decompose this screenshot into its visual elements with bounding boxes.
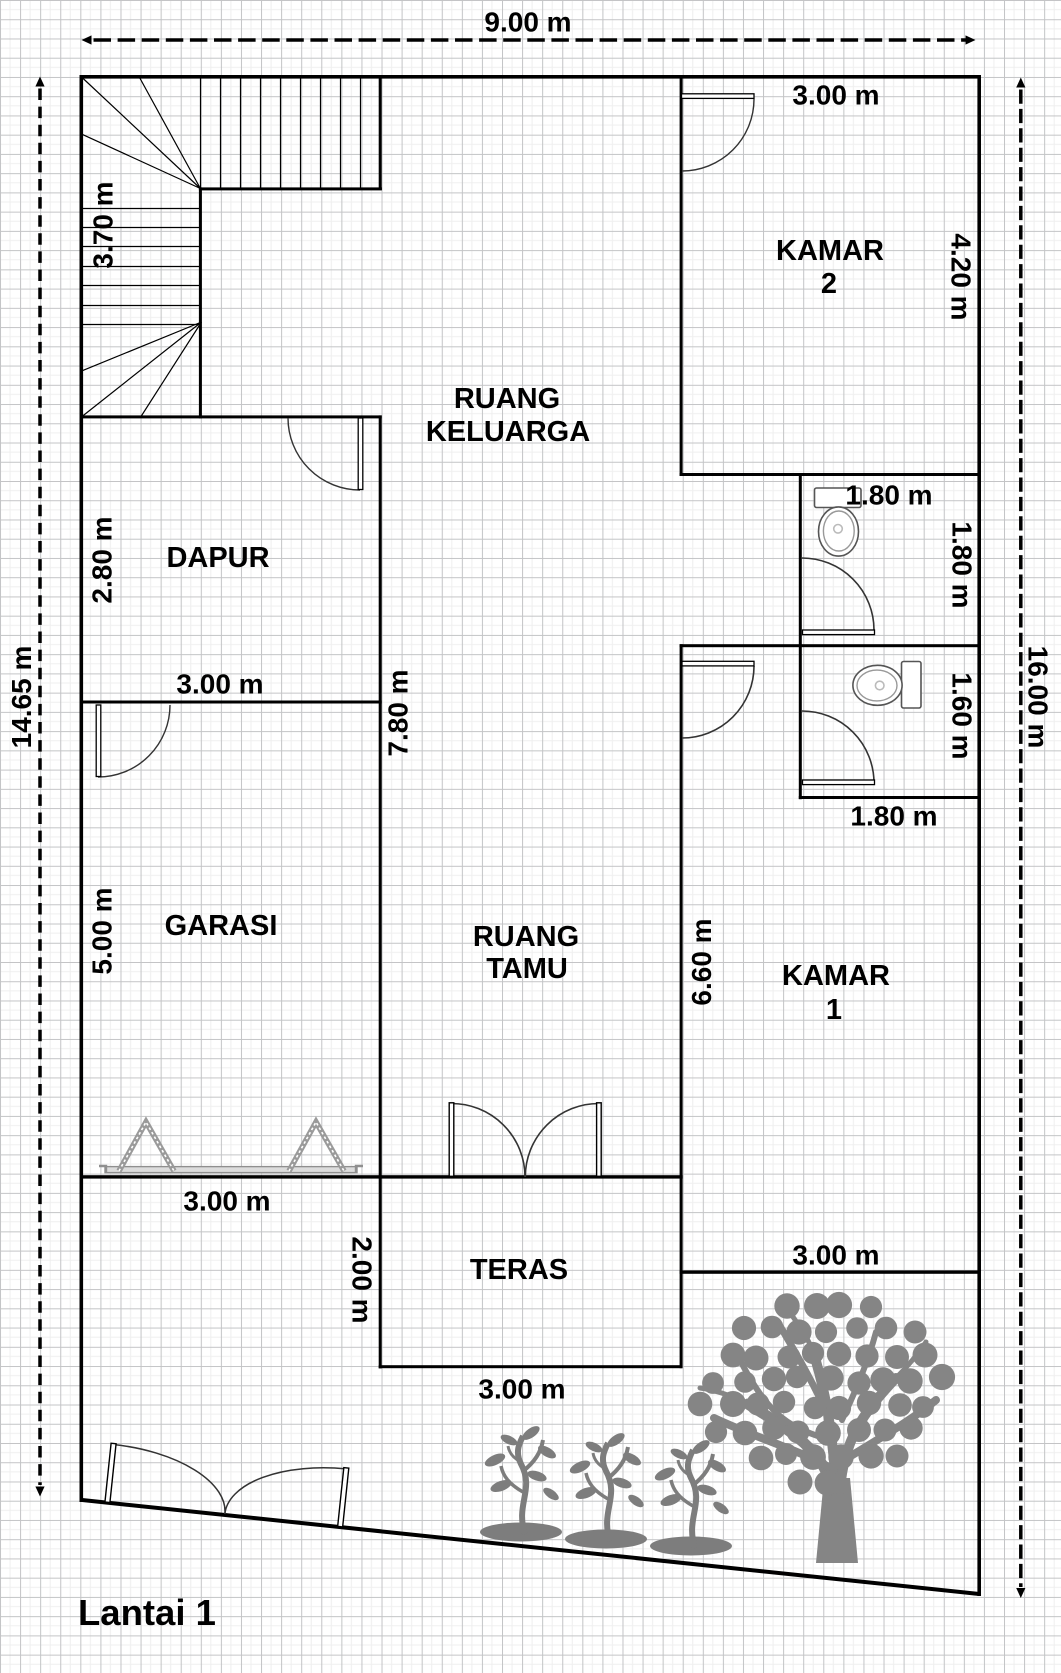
svg-text:4.20 m: 4.20 m — [946, 233, 977, 320]
svg-text:5.00 m: 5.00 m — [87, 887, 118, 974]
svg-text:GARASI: GARASI — [165, 910, 278, 942]
svg-text:9.00 m: 9.00 m — [484, 7, 571, 38]
svg-text:KELUARGA: KELUARGA — [426, 416, 590, 448]
svg-text:3.00 m: 3.00 m — [792, 80, 879, 111]
svg-text:16.00 m: 16.00 m — [1022, 646, 1053, 749]
svg-text:KAMAR: KAMAR — [782, 960, 890, 992]
svg-text:3.70 m: 3.70 m — [88, 181, 119, 268]
svg-text:6.60 m: 6.60 m — [686, 918, 717, 1005]
svg-text:3.00 m: 3.00 m — [478, 1374, 565, 1405]
svg-text:3.00 m: 3.00 m — [792, 1240, 879, 1271]
svg-text:7.80 m: 7.80 m — [383, 669, 414, 756]
svg-text:1.80 m: 1.80 m — [845, 480, 932, 511]
svg-text:1.80 m: 1.80 m — [850, 801, 937, 832]
svg-text:1.80 m: 1.80 m — [947, 521, 978, 608]
svg-text:TERAS: TERAS — [470, 1254, 568, 1286]
svg-text:2.80 m: 2.80 m — [87, 516, 118, 603]
svg-text:KAMAR: KAMAR — [776, 235, 884, 267]
svg-text:TAMU: TAMU — [486, 953, 568, 985]
svg-text:Lantai 1: Lantai 1 — [78, 1592, 216, 1633]
svg-text:RUANG: RUANG — [473, 921, 579, 953]
svg-text:RUANG: RUANG — [454, 383, 560, 415]
svg-text:3.00 m: 3.00 m — [176, 669, 263, 700]
svg-text:1: 1 — [826, 994, 842, 1026]
svg-text:2: 2 — [821, 268, 837, 300]
svg-text:1.60 m: 1.60 m — [947, 672, 978, 759]
svg-text:3.00 m: 3.00 m — [183, 1186, 270, 1217]
svg-text:2.00 m: 2.00 m — [347, 1236, 378, 1323]
svg-text:DAPUR: DAPUR — [166, 542, 269, 574]
svg-text:14.65 m: 14.65 m — [6, 646, 37, 749]
